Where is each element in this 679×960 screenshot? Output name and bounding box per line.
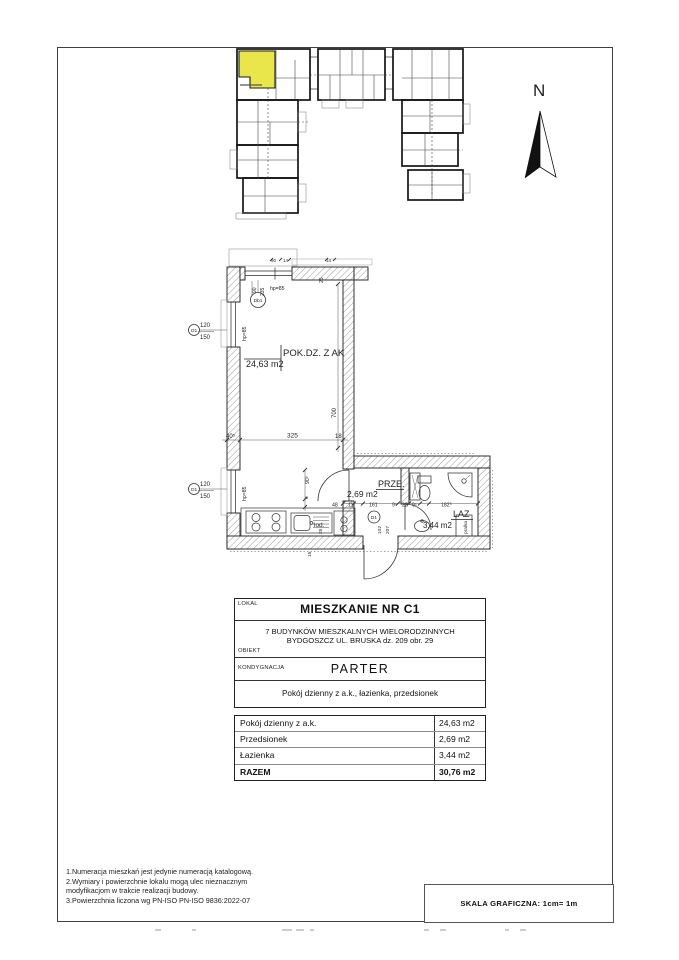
plan-dimension-text: hp=85 [242,486,248,501]
plan-dimension-text: 90 [271,258,277,263]
north-arrow-light-half [540,111,556,177]
scale-mark [282,929,292,931]
obiekt-label: OBIEKT [238,648,260,654]
footnotes: 1.Numeracja mieszkań jest jedynie numera… [66,867,326,906]
plan-dimension-text: 14 [326,258,332,263]
plan-dimension-text: 6 [304,496,310,499]
plan-dimension-text: 207 [385,526,391,534]
plan-dimension-text: 18 [335,434,342,440]
table-row: Pokój dzienny z a.k. 24,63 m2 [235,716,485,732]
scale-mark [310,929,314,931]
row-lokal: LOKAL MIESZKANIE NR C1 [235,599,485,621]
scale-box: SKALA GRAFICZNA: 1cm= 1m [424,884,614,923]
row-kondygnacja: KONDYGNACJA PARTER [235,658,485,681]
scale-mark [505,929,509,931]
building-overview [230,49,470,219]
plan-dimension-text: hp=85 [242,326,248,341]
plan-dimension-text: 15 [307,551,313,557]
architectural-drawing: N [0,0,679,960]
entrance-door [364,545,398,579]
room-name: Przedsionek [235,732,434,747]
table-row: Przedsionek 2,69 m2 [235,732,485,748]
plan-dimension-text: 11 [348,503,353,509]
plan-dimension-text: 25 [318,528,324,534]
table-row-total: RAZEM 30,76 m2 [235,765,485,780]
north-arrow-dark-half [525,111,540,178]
plan-dimension-text: O1 [191,487,198,493]
title-block: LOKAL MIESZKANIE NR C1 OBIEKT 7 BUDYNKÓW… [234,598,486,708]
plan-dimension-text: lod. [314,522,325,529]
plan-dimension-text: 25 [319,277,325,283]
plan-dimension-text: 24,63 m2 [246,359,284,369]
note-line: modyfikacjom w trakcie realizacji budowy… [66,886,326,896]
overview-balconies [230,100,470,219]
plan-dimension-text: 700 [332,407,338,418]
plan-dimension-text: 182⁵ [441,503,452,509]
plan-dimension-text: 48 [332,503,338,509]
plan-dimension-text: LAZ [453,509,470,519]
plan-dimension-text: 14 [283,258,289,263]
north-label: N [533,81,545,100]
cooktop [246,511,286,533]
total-label: RAZEM [235,765,434,780]
project-name-line1: 7 BUDYNKÓW MIESZKALNYCH WIELORODZINNYCH [235,627,485,636]
overview-connectors [310,57,393,89]
scale-mark [424,929,429,931]
plan-dimension-text: 120 [200,323,211,329]
scale-mark [296,929,304,931]
plan-dimension-text: 40⁵ [226,433,236,440]
info-table: LOKAL MIESZKANIE NR C1 OBIEKT 7 BUDYNKÓW… [234,598,486,781]
row-obiekt: OBIEKT 7 BUDYNKÓW MIESZKALNYCH WIELORODZ… [235,621,485,658]
plan-dimension-text: 22 [402,503,408,509]
plan-dimension-text: PRZE. [378,479,405,489]
area-table: Pokój dzienny z a.k. 24,63 m2 Przedsione… [234,715,486,781]
doors [318,470,431,579]
plan-dimension-text: 120 [200,482,211,488]
room-area: 3,44 m2 [434,748,485,763]
scale-mark [440,929,446,931]
plan-dimension-text: 90 [252,287,258,293]
plan-dimension-text: 150 [200,335,211,341]
scale-label: SKALA GRAFICZNA: 1cm= 1m [460,899,577,908]
total-area: 30,76 m2 [434,765,485,780]
plan-dimension-text: 235 [260,287,266,296]
kitchen-fixtures [241,508,355,536]
note-line: 3.Powierzchnia liczona wg PN-ISO PN-ISO … [66,896,326,906]
plan-dimension-text: 325 [287,433,298,440]
room-name: Łazienka [235,748,434,763]
plan-dimension-text: O1 [191,328,198,334]
room-door [318,470,349,501]
plan-sheet: N [0,0,679,960]
plan-dimension-text: D1 [371,515,377,521]
scale-mark [192,929,196,931]
plan-dimension-text: 3,44 m2 [423,521,452,530]
note-line: 2.Wymiary i powierzchnie lokalu mogą ule… [66,877,326,887]
north-arrow: N [525,81,556,178]
plan-dimension-text: 102 [377,526,383,534]
table-row: Łazienka 3,44 m2 [235,748,485,764]
note-line: 1.Numeracja mieszkań jest jedynie numera… [66,867,326,877]
plan-dimension-text: 150 [200,494,211,500]
plan-dimension-text: Db1 [254,298,263,304]
row-room-list: Pokój dzienny z a.k., łazienka, przedsio… [235,681,485,707]
highlighted-unit-c1 [239,51,275,88]
plan-dimension-text: 9⁵ [412,503,417,509]
plan-dimension-text: 90⁵ [305,476,311,484]
apartment-plan: POK.DZ. Z AK24,63 m2PRZE.2,69 m2LAZ3,44 … [189,249,493,579]
lokal-label: LOKAL [238,601,258,607]
scale-mark [520,929,526,931]
scale-mark [155,929,161,931]
plan-dimension-text: 9⁵ [392,503,397,509]
project-name-line2: BYDGOSZCZ UL. BRUSKA dz. 209 obr. 29 [235,636,485,645]
kitchen-sink [291,513,332,533]
room-name: Pokój dzienny z a.k. [235,716,434,731]
room-list: Pokój dzienny z a.k., łazienka, przedsio… [235,681,485,707]
room-area: 24,63 m2 [434,716,485,731]
graphic-scale-marks [0,929,679,933]
kitchen-counter [241,508,355,536]
room-area: 2,69 m2 [434,732,485,747]
plan-dimension-text: 161 [369,503,378,509]
toilet [419,486,430,501]
plan-dimension-text: 2,69 m2 [347,489,378,499]
apartment-number: MIESZKANIE NR C1 [235,599,485,620]
neighbor-slab [292,259,372,265]
kondygnacja-label: KONDYGNACJA [238,665,284,671]
plan-dimension-text: POK.DZ. Z AK [283,348,345,359]
plan-dimension-text: hp=85 [270,286,285,292]
plan-dimension-text: pralka [463,521,469,534]
